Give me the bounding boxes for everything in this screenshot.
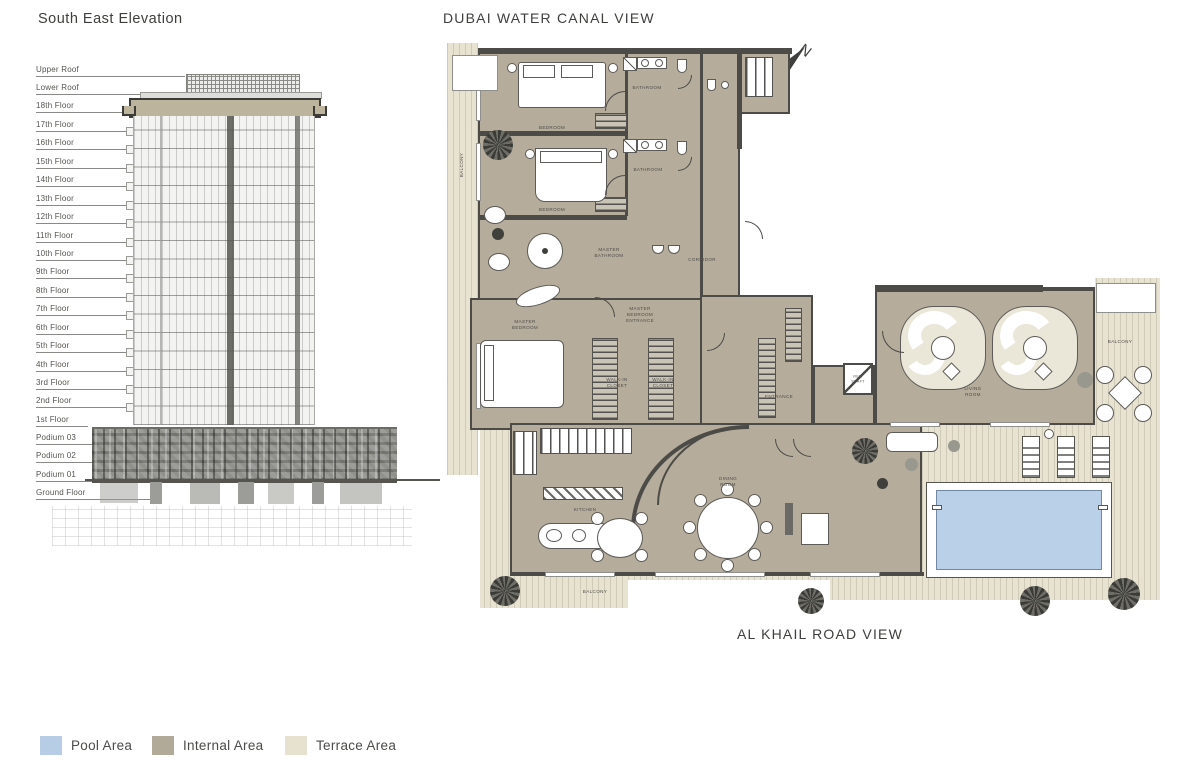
elevation-podium-baseline [85,479,440,481]
floor-label-1st-floor: 1st Floor [36,415,69,424]
elevation-right-mullion [295,116,300,425]
floor-label-9th-floor: 9th Floor [36,267,69,276]
floor-label-18th-floor: 18th Floor [36,101,74,110]
elevation-ground-column [238,482,254,504]
door-swing [745,221,763,239]
elevation-ground-glass [268,483,294,504]
kitchen-counter [540,428,632,454]
floor-label-podium-02: Podium 02 [36,451,76,460]
sink [641,141,649,149]
planter-box [1096,283,1156,313]
toilet [677,141,687,155]
window [476,143,481,201]
room-label-bedroom-1: BEDROOM [539,125,565,131]
room-label-ref-shaft: REF. SHAFT [848,374,868,383]
room-label-entrance: ENTRANCE [765,394,793,400]
floor-label-17th-floor: 17th Floor [36,120,74,129]
egg-chair [484,206,506,224]
entrance-closet [785,308,802,362]
outdoor-chair [1134,404,1152,422]
side-table [1044,429,1054,439]
swimming-pool [936,490,1102,570]
kitchen-sink [546,529,562,542]
shower [623,57,637,71]
floor-label-12th-floor: 12th Floor [36,212,74,221]
elevation-18th-floor-highlight [129,98,321,118]
chair [591,512,604,525]
coffee-table [931,336,955,360]
linen-closet [745,57,773,97]
tree [490,576,520,606]
legend-item-pool: Pool Area [40,736,132,755]
planter-pot [1077,372,1093,388]
legend-swatch-terrace [285,736,307,755]
room-label-kitchen: KITCHEN [574,507,597,513]
window [890,422,940,427]
floor-leader-line [36,481,92,482]
window [545,572,615,577]
legend-label-pool: Pool Area [71,738,132,753]
chair [721,559,734,572]
elevation-18th-floor-step-right [313,106,327,116]
floor-leader-line [36,76,185,77]
outdoor-sofa [886,432,938,452]
sideboard [801,513,829,545]
pillow [523,65,555,78]
sun-lounger [1057,436,1075,478]
floor-leader-line [36,444,92,445]
wall-top [478,48,792,54]
planter-box [452,55,498,91]
sink [655,141,663,149]
side-table [492,228,504,240]
floor-label-7th-floor: 7th Floor [36,304,69,313]
elevation-core-mullion [227,116,234,425]
window [810,572,880,577]
room-label-balcony-left: BALCONY [459,153,465,177]
floor-leader-line [36,426,88,427]
legend-item-terrace: Terrace Area [285,736,396,755]
sun-lounger [1022,436,1040,478]
room-label-balcony-bottom: BALCONY [583,589,607,595]
elevation-18th-floor-step-left [122,106,136,116]
floor-leader-line [36,462,92,463]
chair [694,494,707,507]
elevation-roof-pergola [186,74,300,94]
elevation-ground-wall [190,483,220,504]
floor-label-2nd-floor: 2nd Floor [36,396,72,405]
room-label-bathroom-1: BATHROOM [632,85,661,91]
sink [721,81,729,89]
outdoor-chair [1096,404,1114,422]
tree [483,130,513,160]
chair [748,494,761,507]
floor-label-podium-03: Podium 03 [36,433,76,442]
floor-leader-line [36,112,131,113]
closet-shelves [758,338,776,418]
room-label-dining-room: DINING ROOM [715,476,741,488]
toilet [707,79,716,91]
tree [1108,578,1140,610]
toilet [677,59,687,73]
chair [635,549,648,562]
room-label-master-bedroom: MASTER BEDROOM [510,319,540,331]
sink [655,59,663,67]
floor-label-6th-floor: 6th Floor [36,323,69,332]
chair [760,521,773,534]
wall-hall [737,52,742,149]
drain [542,248,548,254]
chair [694,548,707,561]
legend-label-terrace: Terrace Area [316,738,396,753]
page: South East Elevation DUBAI WATER CANAL V… [0,0,1200,762]
egg-chair [488,253,510,271]
floor-label-8th-floor: 8th Floor [36,286,69,295]
chair [635,512,648,525]
floor-label-podium-01: Podium 01 [36,470,76,479]
nightstand [507,63,517,73]
window [990,422,1050,427]
console [785,503,793,535]
tall-units-fridge [513,431,537,475]
elevation-landscape-paving [52,506,412,546]
shower [623,139,637,153]
legend-item-internal: Internal Area [152,736,263,755]
room-label-bathroom-2: BATHROOM [633,167,662,173]
chair [748,548,761,561]
pillow [484,345,494,401]
elevation-ground-wall [340,483,382,504]
nightstand [608,63,618,73]
elevation-title: South East Elevation [38,11,183,27]
tree [1020,586,1050,616]
floor-label-16th-floor: 16th Floor [36,138,74,147]
outdoor-chair [1134,366,1152,384]
planter-pot [905,458,918,471]
room-label-master-bathroom: MASTER BATHROOM [592,247,626,259]
elevation-left-mullion [160,116,162,425]
elevation-podium-screen [92,427,397,483]
room-label-balcony-right: BALCONY [1108,339,1132,345]
floor-label-14th-floor: 14th Floor [36,175,74,184]
floor-label-lower-roof: Lower Roof [36,83,79,92]
outdoor-chair [1096,366,1114,384]
wardrobe [595,113,627,129]
pillow [561,65,593,78]
floor-label-3rd-floor: 3rd Floor [36,378,70,387]
floorplan-panel: BEDROOM BATHROOM BEDROOM BATHROOM MASTER… [445,35,1160,643]
room-label-walk-in-closet-1: WALK-IN CLOSET [604,377,630,389]
legend-label-internal: Internal Area [183,738,263,753]
chair [591,549,604,562]
room-label-corridor: CORRIDOR [688,257,716,263]
floor-label-11th-floor: 11th Floor [36,231,73,240]
room-label-walk-in-closet-2: WALK-IN CLOSET [650,377,676,389]
floor-label-13th-floor: 13th Floor [36,194,74,203]
tree [798,588,824,614]
nightstand [608,149,618,159]
planter-pot [877,478,888,489]
window [655,572,765,577]
floor-label-4th-floor: 4th Floor [36,360,69,369]
floor-label-15th-floor: 15th Floor [36,157,74,166]
sun-lounger [1092,436,1110,478]
room-label-master-bedroom-entrance: MASTER BEDROOM ENTRANCE [622,306,658,324]
pool-ladder [932,505,942,510]
room-label-bedroom-2: BEDROOM [539,207,565,213]
nightstand [525,149,535,159]
cooktop [572,529,586,542]
floor-label-upper-roof: Upper Roof [36,65,79,74]
elevation-ground-column [150,482,162,504]
legend-swatch-internal [152,736,174,755]
floor-leader-line [36,94,143,95]
floor-label-5th-floor: 5th Floor [36,341,69,350]
kitchen-runner [543,487,623,500]
wall-living-top [875,285,1043,292]
coffee-table [1023,336,1047,360]
plan-title-canal-view: DUBAI WATER CANAL VIEW [443,10,655,26]
elevation-ground-glass [100,483,138,503]
tree [852,438,878,464]
chair [683,521,696,534]
room-label-living-room: LIVING ROOM [960,386,986,398]
floor-label-ground-floor: Ground Floor [36,488,86,497]
pillow [540,151,602,163]
elevation-ground-column [312,482,324,504]
side-table [948,440,960,452]
floor-label-10th-floor: 10th Floor [36,249,74,258]
sink [641,59,649,67]
wall-living-top-right [1043,287,1095,291]
legend-swatch-pool [40,736,62,755]
pool-ladder [1098,505,1108,510]
